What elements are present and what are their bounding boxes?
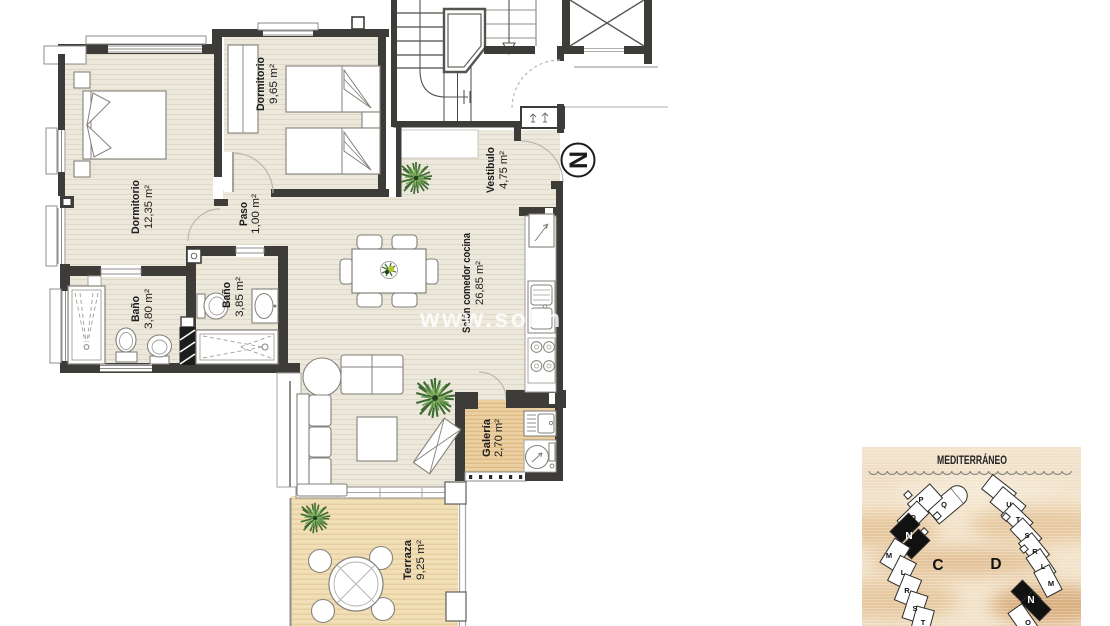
svg-text:M: M [1048,579,1054,588]
svg-text:3,85 m²: 3,85 m² [234,276,246,317]
svg-text:1,00 m²: 1,00 m² [250,193,262,234]
svg-text:T: T [1016,515,1021,524]
svg-text:Q: Q [941,500,947,509]
svg-text:C: C [932,557,943,574]
svg-text:9,25 m²: 9,25 m² [415,539,427,580]
svg-text:N: N [565,151,593,169]
svg-text:4,75 m²: 4,75 m² [498,151,510,189]
svg-text:Dormitorio: Dormitorio [255,57,267,111]
svg-text:T: T [921,618,926,626]
svg-text:Vestibulo: Vestibulo [485,147,497,193]
svg-text:L: L [901,568,906,577]
svg-text:Baño: Baño [130,296,142,322]
svg-text:S: S [1024,531,1029,540]
svg-text:MEDITERRÁNEO: MEDITERRÁNEO [937,452,1007,467]
svg-text:P: P [918,495,923,504]
svg-text:Terraza: Terraza [402,539,414,580]
svg-text:N: N [1027,595,1034,606]
svg-text:D: D [990,556,1001,573]
svg-text:L: L [1041,562,1046,571]
svg-text:12,35 m²: 12,35 m² [143,185,155,229]
svg-text:N: N [905,531,912,542]
svg-text:S: S [912,604,917,613]
svg-text:Galería: Galería [481,418,493,457]
svg-text:Dormitorio: Dormitorio [130,180,142,234]
svg-text:Baño: Baño [221,282,233,308]
svg-text:26,85 m²: 26,85 m² [474,261,486,305]
svg-text:2,70 m²: 2,70 m² [493,419,505,457]
svg-text:O: O [910,513,916,522]
svg-text:O: O [1025,618,1031,626]
svg-text:R: R [904,586,910,595]
svg-text:U: U [1006,500,1011,509]
svg-text:M: M [886,551,892,560]
svg-text:9,65 m²: 9,65 m² [268,63,280,104]
svg-text:Paso: Paso [238,202,250,226]
svg-text:R: R [1032,547,1038,556]
svg-text:www.solmar: www.solmar [419,305,591,333]
svg-text:3,80 m²: 3,80 m² [143,288,155,329]
